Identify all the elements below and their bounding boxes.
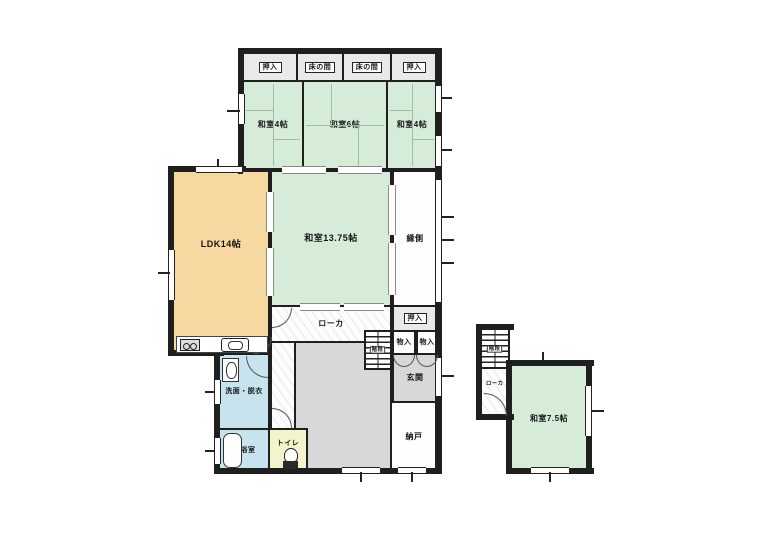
- tatami-line: [273, 139, 300, 140]
- toilet-icon: [283, 448, 298, 470]
- tatami-line: [412, 139, 434, 140]
- wall-segment: [506, 360, 512, 474]
- grid-tick: [549, 472, 551, 482]
- sliding-door-opening: [282, 166, 326, 174]
- label-monoire-right: 物入: [420, 339, 435, 346]
- grid-tick: [592, 410, 604, 412]
- room-oshiire-top-left: 押入: [242, 52, 298, 82]
- grid-tick: [442, 239, 454, 241]
- label-oshiire-engawa: 押入: [404, 313, 427, 324]
- wall-segment: [238, 48, 442, 53]
- room-oshiire-engawa: 押入: [392, 305, 438, 332]
- sliding-door-opening: [388, 243, 396, 295]
- label-yokushitsu: 浴室: [241, 447, 256, 454]
- grid-tick: [205, 391, 215, 393]
- tatami-line: [331, 84, 332, 125]
- window: [435, 86, 442, 112]
- sliding-door-opening: [344, 303, 384, 311]
- label-oshiire-top-left: 押入: [259, 62, 282, 73]
- room-monoire-left: 物入: [392, 330, 416, 355]
- label-kaidan-annex: 階段: [487, 345, 502, 352]
- grid-tick: [360, 472, 362, 482]
- label-senmen: 洗面・脱衣: [225, 388, 263, 395]
- tatami-line: [273, 84, 274, 166]
- window: [435, 136, 442, 166]
- label-washitsu-7-5: 和室7.5帖: [530, 415, 568, 423]
- tatami-line: [246, 110, 273, 111]
- label-tokonoma-left: 床の間: [305, 62, 336, 73]
- label-washitsu-13-75: 和室13.75帖: [304, 234, 358, 243]
- label-toire: トイレ: [277, 440, 300, 447]
- sink-icon: [221, 338, 249, 352]
- sliding-door-opening: [300, 303, 340, 311]
- sliding-door-opening: [266, 248, 274, 296]
- tatami-line: [306, 125, 384, 126]
- label-roka-annex: ローカ: [486, 381, 504, 386]
- grid-tick: [442, 216, 454, 218]
- grid-tick: [442, 375, 454, 377]
- grid-tick: [227, 110, 240, 112]
- sliding-door-opening: [266, 192, 274, 232]
- washbasin-icon: [222, 358, 239, 382]
- room-washitsu-6: 和室6帖: [302, 80, 388, 170]
- room-tokonoma-right: 床の間: [342, 52, 392, 82]
- label-monoire-left: 物入: [397, 339, 412, 346]
- grid-tick: [442, 97, 452, 99]
- entrance-door: [435, 358, 442, 396]
- label-ldk: LDK14帖: [201, 240, 242, 249]
- grid-tick: [217, 159, 219, 167]
- room-washitsu-7-5: 和室7.5帖: [508, 363, 590, 474]
- tatami-line: [412, 84, 413, 166]
- label-roka-main: ローカ: [318, 320, 344, 328]
- window: [196, 166, 242, 173]
- label-kaidan-main: 階段: [370, 346, 385, 353]
- window: [214, 380, 221, 404]
- room-washitsu-4-left: 和室4帖: [242, 80, 304, 170]
- wall-segment: [476, 324, 482, 420]
- room-tokonoma-left: 床の間: [296, 52, 344, 82]
- grid-tick: [442, 262, 454, 264]
- grid-tick: [411, 472, 413, 482]
- room-engawa: 縁側: [392, 170, 438, 307]
- sliding-door-opening: [338, 166, 382, 174]
- room-washitsu-4-right: 和室4帖: [386, 80, 438, 170]
- window: [238, 94, 245, 124]
- tatami-line: [390, 110, 412, 111]
- room-kaidan-main: 階段: [364, 330, 392, 370]
- stove-icon: [180, 339, 200, 351]
- room-washitsu-13-75: 和室13.75帖: [270, 170, 392, 307]
- sliding-door-opening: [388, 185, 396, 235]
- grid-tick: [442, 149, 452, 151]
- window: [214, 438, 221, 464]
- label-engawa: 縁側: [407, 235, 424, 243]
- label-nando: 納戸: [406, 433, 423, 441]
- label-genkan: 玄関: [407, 374, 424, 382]
- window: [585, 386, 592, 436]
- grid-tick: [158, 272, 170, 274]
- window: [168, 250, 175, 300]
- tatami-line: [358, 125, 359, 166]
- room-nando: 納戸: [390, 401, 438, 472]
- room-oshiire-top-right: 押入: [390, 52, 438, 82]
- window-engawa: [435, 180, 442, 302]
- floor-plan: 押入 床の間 床の間 押入 和室4帖 和室6帖 和室4帖 LDK14帖 和室13…: [0, 0, 768, 544]
- label-tokonoma-right: 床の間: [352, 62, 383, 73]
- grid-tick: [205, 450, 215, 452]
- bathtub-icon: [223, 433, 242, 468]
- room-ldk: LDK14帖: [172, 170, 270, 355]
- label-oshiire-top-right: 押入: [403, 62, 426, 73]
- wall-segment: [506, 360, 594, 366]
- grid-tick: [542, 352, 544, 361]
